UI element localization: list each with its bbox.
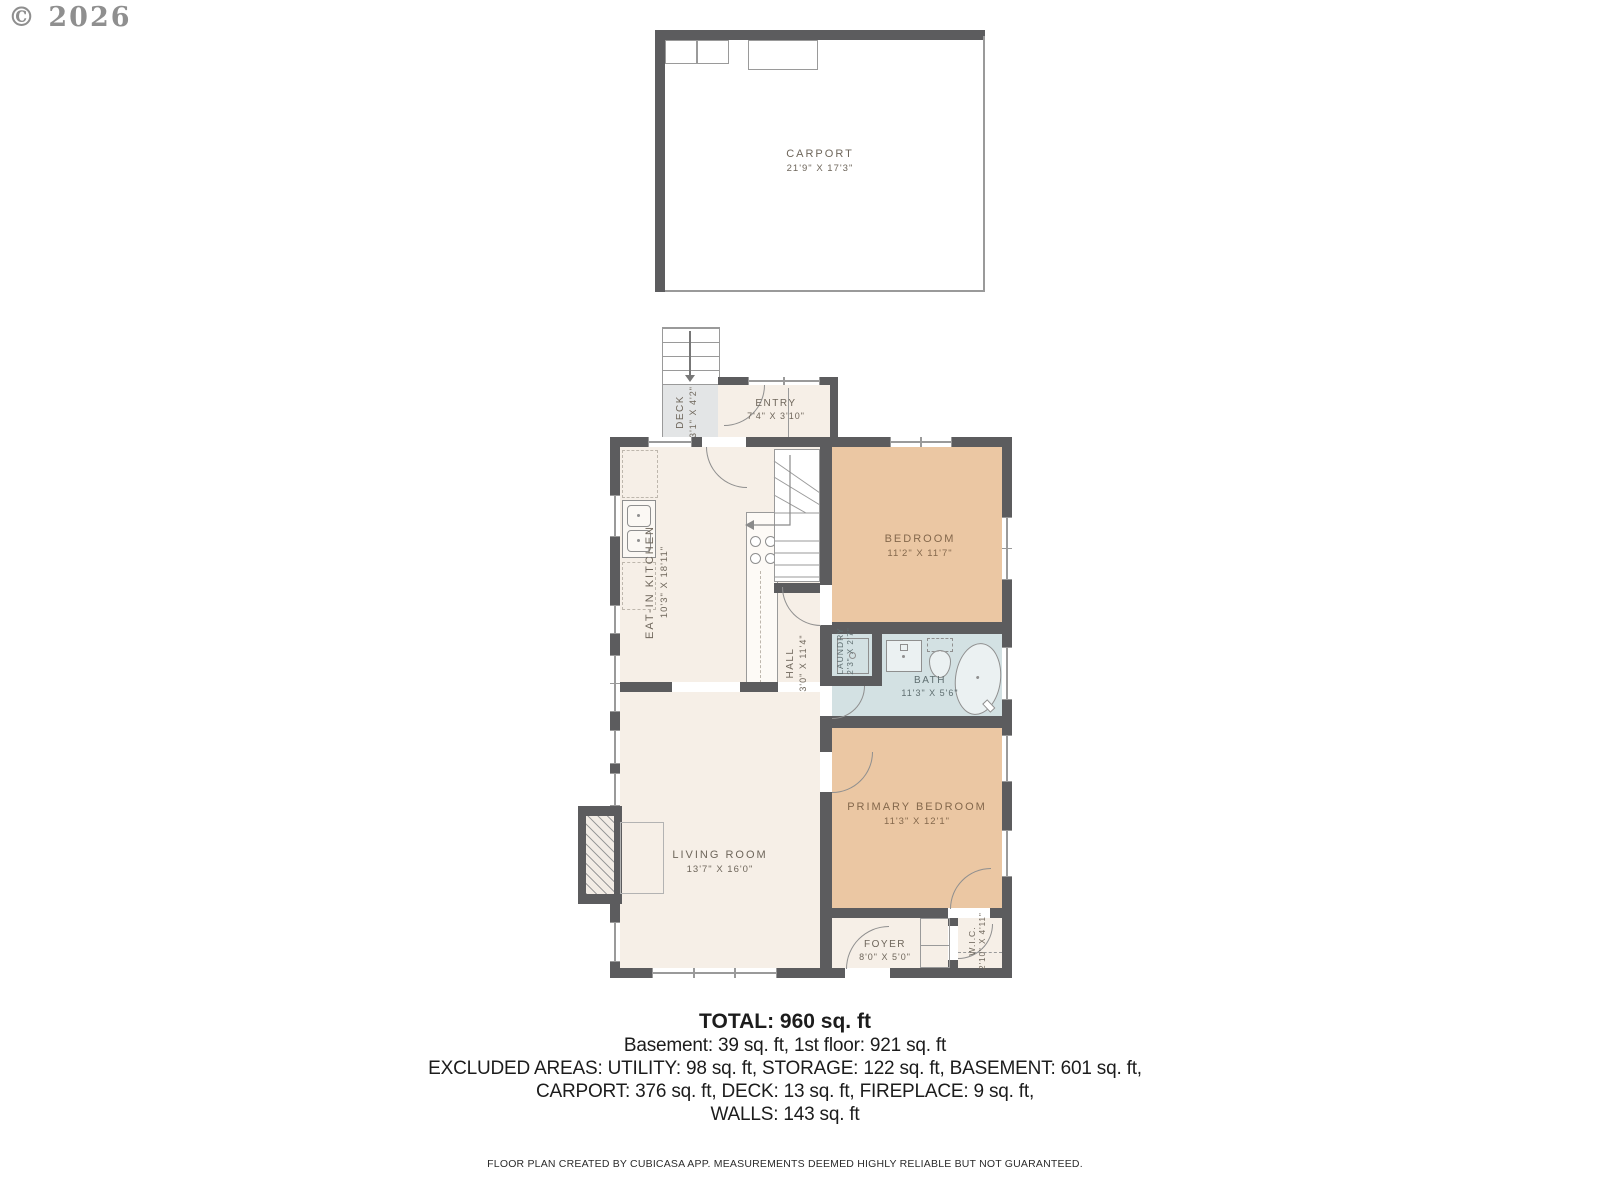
room-label-hall: HALL 3'0" x 11'4" bbox=[784, 603, 814, 723]
area-summary: TOTAL: 960 sq. ft Basement: 39 sq. ft, 1… bbox=[285, 1010, 1285, 1126]
door-opening bbox=[820, 585, 832, 625]
window bbox=[610, 773, 620, 806]
window bbox=[610, 655, 620, 712]
summary-line: CARPORT: 376 sq. ft, DECK: 13 sq. ft, FI… bbox=[285, 1080, 1285, 1103]
room-label-wic: W.I.C. 2'10" x 4'11" bbox=[967, 896, 991, 986]
summary-line: EXCLUDED AREAS: UTILITY: 98 sq. ft, STOR… bbox=[285, 1057, 1285, 1080]
window bbox=[610, 922, 620, 962]
kitchen-counter bbox=[622, 450, 658, 498]
room-label-primary-bedroom: PRIMARY BEDROOM 11'3" x 12'1" bbox=[817, 800, 1017, 828]
room-label-kitchen: EAT-IN KITCHEN 10'3" x 18'11" bbox=[643, 497, 677, 667]
laundry-label-clip: LAUNDRY 2'3" x 2'7" bbox=[824, 626, 874, 678]
window bbox=[652, 968, 777, 978]
carport-open-side-line bbox=[983, 36, 985, 292]
room-label-foyer: FOYER 8'0" x 5'0" bbox=[825, 938, 945, 963]
window bbox=[1002, 735, 1012, 782]
window bbox=[890, 437, 952, 447]
door-opening bbox=[820, 686, 832, 716]
fireplace-hatch bbox=[586, 816, 614, 894]
door-opening bbox=[845, 968, 890, 978]
storage-box bbox=[696, 40, 729, 64]
room-label-entry: ENTRY 7'4" x 3'10" bbox=[716, 397, 836, 422]
room-label-living-room: LIVING ROOM 13'7" x 16'0" bbox=[620, 848, 820, 876]
window-divider bbox=[693, 968, 695, 978]
wall bbox=[655, 30, 985, 40]
floor-plan-page: © 2026 CARPORT 21'9" x 17'3" DECK 3'1" x… bbox=[0, 0, 1600, 1200]
counter-line bbox=[760, 571, 761, 683]
room-label-bedroom: BEDROOM 11'2" x 11'7" bbox=[820, 532, 1020, 560]
carport-open-side-line bbox=[665, 290, 985, 292]
total-area: TOTAL: 960 sq. ft bbox=[285, 1010, 1285, 1034]
bathroom-sink bbox=[886, 640, 922, 672]
door-opening bbox=[702, 437, 746, 447]
summary-line: WALLS: 143 sq. ft bbox=[285, 1103, 1285, 1126]
wall bbox=[740, 682, 778, 692]
window bbox=[648, 437, 692, 447]
window-divider bbox=[734, 968, 736, 978]
room-label-bath: BATH 11'3" x 5'6" bbox=[860, 674, 1000, 699]
summary-line: Basement: 39 sq. ft, 1st floor: 921 sq. … bbox=[285, 1034, 1285, 1057]
window bbox=[1002, 830, 1012, 877]
storage-box bbox=[748, 40, 818, 70]
window bbox=[610, 495, 620, 537]
stairs-up-arrow bbox=[745, 520, 754, 530]
interior-stairs bbox=[744, 449, 822, 585]
copyright-watermark: © 2026 bbox=[8, 2, 132, 33]
disclaimer-text: FLOOR PLAN CREATED BY CUBICASA APP. MEAS… bbox=[285, 1158, 1285, 1170]
room-label-laundry: LAUNDRY 2'3" x 2'7" bbox=[835, 626, 861, 678]
window bbox=[748, 377, 820, 385]
storage-box bbox=[665, 40, 698, 64]
window bbox=[610, 605, 620, 634]
window bbox=[1002, 647, 1012, 700]
window bbox=[610, 730, 620, 764]
room-label-carport: CARPORT 21'9" x 17'3" bbox=[720, 147, 920, 175]
wall bbox=[820, 716, 1002, 728]
wall bbox=[655, 30, 665, 292]
door-opening bbox=[820, 752, 832, 792]
